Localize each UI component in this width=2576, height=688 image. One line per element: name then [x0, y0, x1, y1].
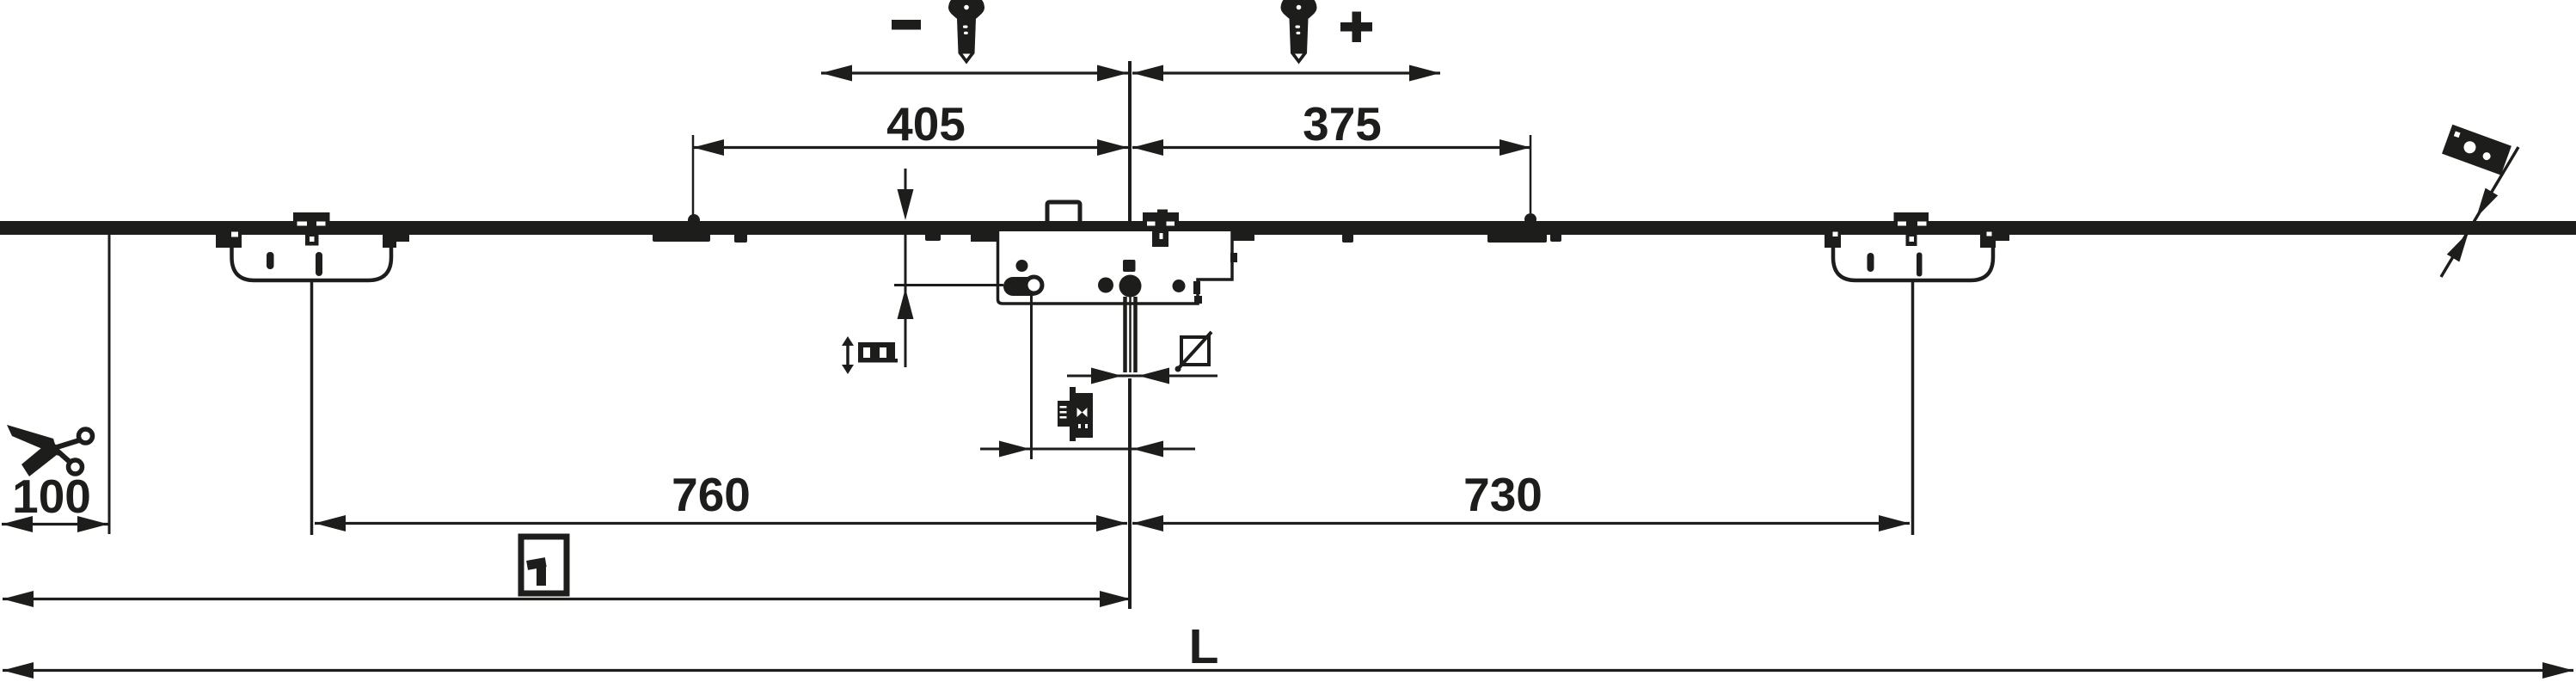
svg-text:L: L [1189, 619, 1219, 674]
svg-text:375: 375 [1303, 97, 1382, 150]
svg-text:760: 760 [672, 468, 751, 521]
svg-text:100: 100 [12, 470, 91, 523]
svg-text:405: 405 [886, 97, 966, 150]
svg-text:730: 730 [1463, 468, 1543, 521]
